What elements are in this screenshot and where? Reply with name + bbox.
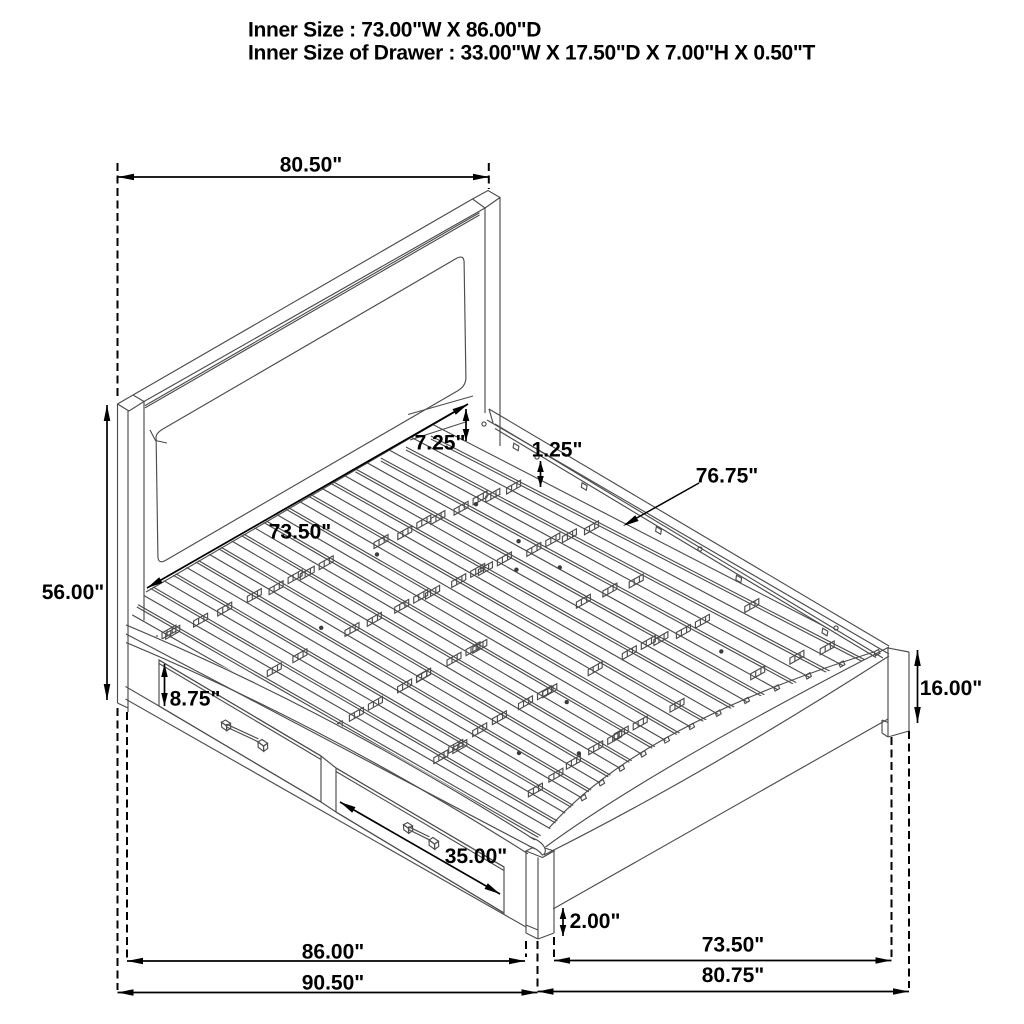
svg-text:80.75": 80.75": [702, 964, 765, 987]
svg-text:Inner Size of Drawer : 33.00"W: Inner Size of Drawer : 33.00"W X 17.50"D…: [248, 42, 815, 65]
svg-text:80.50": 80.50": [280, 154, 343, 177]
svg-text:86.00": 86.00": [302, 941, 365, 964]
svg-text:73.50": 73.50": [702, 934, 765, 957]
svg-text:90.50": 90.50": [302, 972, 365, 995]
svg-text:2.00": 2.00": [570, 910, 621, 933]
svg-text:56.00": 56.00": [42, 581, 105, 604]
svg-text:16.00": 16.00": [920, 677, 983, 700]
svg-text:1.25": 1.25": [532, 439, 583, 462]
svg-text:7.25": 7.25": [415, 432, 466, 455]
svg-text:Inner Size : 73.00"W X 86.00"D: Inner Size : 73.00"W X 86.00"D: [248, 19, 541, 42]
svg-text:35.00": 35.00": [445, 845, 508, 868]
svg-text:73.50": 73.50": [269, 521, 332, 544]
svg-text:76.75": 76.75": [696, 465, 759, 488]
svg-text:8.75": 8.75": [170, 688, 221, 711]
